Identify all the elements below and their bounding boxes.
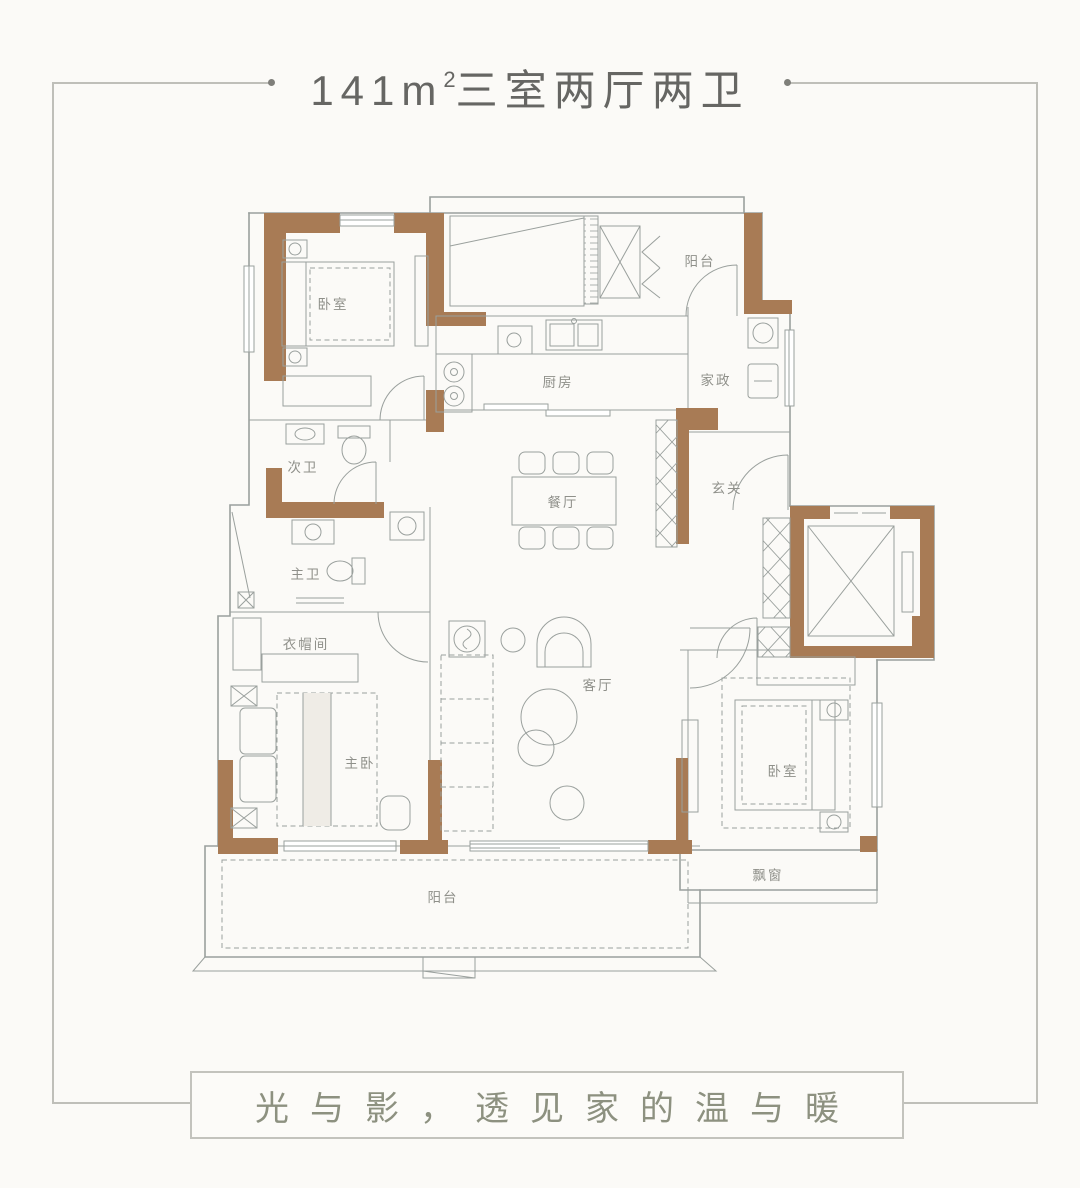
title-rooms-text: 三室两厅两卫 — [456, 67, 750, 114]
room-labels: 卧室 阳台 厨房 家政 次卫 玄关 餐厅 主卫 衣帽间 客厅 主卧 卧室 飘窗 … — [283, 254, 799, 905]
bedroom-tl-furniture — [282, 240, 428, 366]
label-living: 客厅 — [583, 677, 614, 693]
label-closet: 衣帽间 — [283, 637, 330, 652]
label-bedroom-tl: 卧室 — [318, 296, 349, 312]
right-bedroom-furniture — [682, 678, 850, 832]
unit-outline — [193, 197, 934, 978]
label-laundry: 家政 — [701, 372, 732, 388]
label-bay-window: 飘窗 — [753, 867, 784, 883]
label-kitchen: 厨房 — [543, 375, 574, 390]
elevator — [808, 513, 913, 636]
tagline-text: 光与影，透见家的温与暖 — [234, 1081, 860, 1130]
tagline-box: 光与影，透见家的温与暖 — [190, 1071, 904, 1139]
label-balcony-top: 阳台 — [685, 254, 716, 269]
floor-plan: 卧室 阳台 厨房 家政 次卫 玄关 餐厅 主卫 衣帽间 客厅 主卧 卧室 飘窗 … — [150, 180, 950, 1000]
title-area-value: 141m — [310, 67, 443, 114]
frame-bottom-left-segment — [52, 1102, 190, 1104]
label-bedroom-right: 卧室 — [768, 763, 799, 779]
label-bath-second: 次卫 — [288, 460, 319, 475]
frame-top-left-segment — [52, 82, 270, 84]
bath-master-fixtures — [238, 512, 424, 608]
utility-platform — [450, 216, 660, 306]
kitchen-furniture — [436, 316, 688, 416]
floorplan-page: 141m2三室两厅两卫 — [0, 0, 1080, 1188]
title-area-sup: 2 — [443, 67, 455, 92]
label-bedroom-master: 主卧 — [345, 756, 376, 771]
frame-right — [1036, 82, 1038, 1104]
page-title: 141m2三室两厅两卫 — [273, 57, 787, 118]
master-bedroom-furniture — [231, 686, 410, 830]
laundry-furniture — [748, 318, 778, 398]
label-dining: 餐厅 — [548, 495, 579, 510]
frame-top-right-segment — [789, 82, 1038, 84]
label-balcony-bottom: 阳台 — [428, 890, 459, 905]
bath-second-fixtures — [286, 424, 370, 464]
label-foyer: 玄关 — [712, 480, 743, 496]
living-furniture — [441, 617, 591, 831]
frame-left — [52, 82, 54, 1104]
label-bath-master: 主卫 — [291, 567, 322, 582]
frame-bottom-right-segment — [900, 1102, 1038, 1104]
